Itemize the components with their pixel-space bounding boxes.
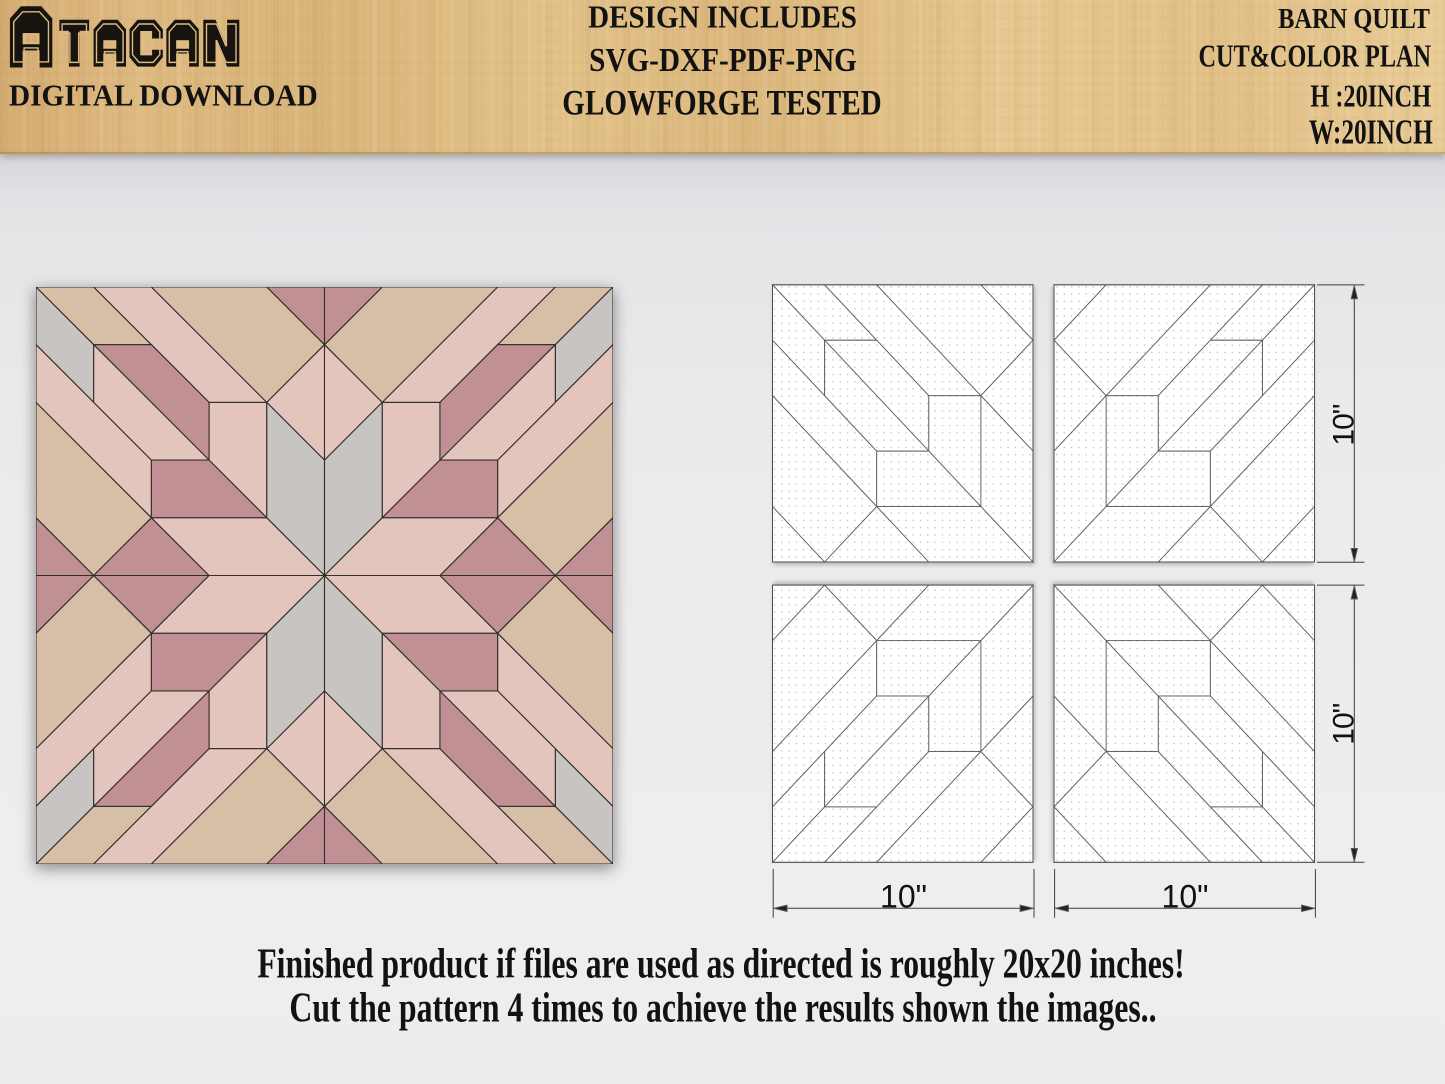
svg-text:10": 10" bbox=[1162, 879, 1209, 915]
svg-text:CUT&COLOR PLAN: CUT&COLOR PLAN bbox=[1198, 39, 1431, 74]
svg-text:DIGITAL DOWNLOAD: DIGITAL DOWNLOAD bbox=[9, 78, 318, 113]
svg-text:10": 10" bbox=[880, 879, 927, 915]
svg-text:SVG-DXF-PDF-PNG: SVG-DXF-PDF-PNG bbox=[589, 41, 857, 79]
svg-text:10": 10" bbox=[1327, 404, 1360, 446]
svg-text:H :20INCH: H :20INCH bbox=[1310, 80, 1431, 115]
svg-text:10": 10" bbox=[1327, 703, 1360, 745]
svg-text:Cut the pattern 4 times to ach: Cut the pattern 4 times to achieve the r… bbox=[289, 985, 1156, 1031]
svg-text:W:20INCH: W:20INCH bbox=[1309, 113, 1433, 152]
svg-text:DESIGN INCLUDES: DESIGN INCLUDES bbox=[588, 0, 857, 35]
svg-text:GLOWFORGE TESTED: GLOWFORGE TESTED bbox=[562, 84, 881, 124]
svg-text:BARN QUILT: BARN QUILT bbox=[1278, 3, 1430, 34]
svg-text:Finished product if files are: Finished product if files are used as di… bbox=[257, 941, 1184, 987]
